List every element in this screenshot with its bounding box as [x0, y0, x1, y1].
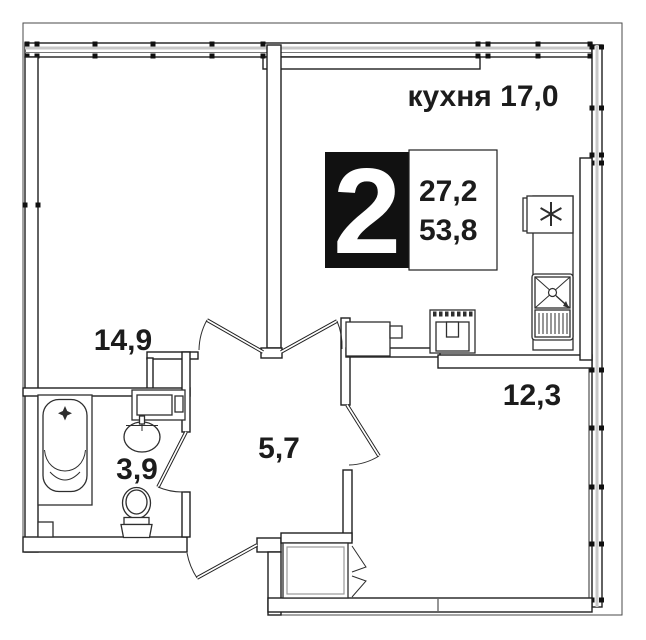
- washbasin: [124, 416, 160, 452]
- kitchen-sink: [532, 274, 573, 340]
- wardrobe: [283, 543, 366, 598]
- rooms-count: 2: [333, 143, 401, 279]
- wall-bottom: [268, 598, 592, 612]
- label-living: 14,9: [94, 324, 152, 357]
- wall-kitchen-south-b: [438, 355, 592, 368]
- corner-duct: [38, 522, 53, 537]
- label-hallway: 5,7: [258, 432, 300, 465]
- floorplan-drawing: 2 27,2 53,8 кухня 17,0 14,9 3,9 5,7 12,3: [0, 0, 646, 640]
- wall-bottom-left: [23, 537, 187, 552]
- faucet-icon: [140, 416, 145, 424]
- door-room: [347, 405, 379, 465]
- badge-area-box: [409, 150, 497, 270]
- door-kitchen: [281, 321, 342, 352]
- stove: [523, 196, 573, 233]
- wall-closet-north: [281, 533, 352, 543]
- wall-bathroom-east-lower: [182, 492, 190, 537]
- entrance-door-post: [257, 538, 281, 552]
- wall-left: [25, 57, 38, 552]
- toilet: [121, 488, 152, 538]
- door-center-post: [261, 348, 282, 358]
- wall-kitchen-east: [580, 158, 592, 360]
- label-kitchen: кухня 17,0: [407, 80, 558, 113]
- window-band-top: [25, 43, 592, 57]
- door-bathroom: [158, 432, 186, 492]
- interior-walls: [23, 45, 592, 598]
- oven-unit: [430, 310, 475, 353]
- balcony-sill: [263, 57, 480, 69]
- shaft-west-edge: [147, 358, 153, 390]
- unit-badge: 2 27,2 53,8: [325, 143, 497, 279]
- wall-hall-room-lower: [343, 470, 352, 540]
- bathtub: [38, 395, 92, 505]
- label-bathroom: 3,9: [116, 453, 158, 486]
- area-total: 53,8: [419, 214, 477, 247]
- area-living: 27,2: [419, 175, 477, 208]
- wall-living-kitchen: [267, 45, 281, 348]
- bifold-door-icon: [352, 546, 366, 572]
- drainboard: [535, 310, 570, 337]
- door-entrance: [187, 545, 257, 578]
- sink-drain-icon: [549, 289, 557, 297]
- room-labels: кухня 17,0 14,9 3,9 5,7 12,3: [94, 80, 561, 486]
- bifold-door-icon: [352, 576, 366, 597]
- window-band-right: [592, 45, 602, 607]
- label-room: 12,3: [503, 379, 561, 412]
- floorplan-page: 2 27,2 53,8 кухня 17,0 14,9 3,9 5,7 12,3: [0, 0, 646, 640]
- door-living: [199, 320, 263, 352]
